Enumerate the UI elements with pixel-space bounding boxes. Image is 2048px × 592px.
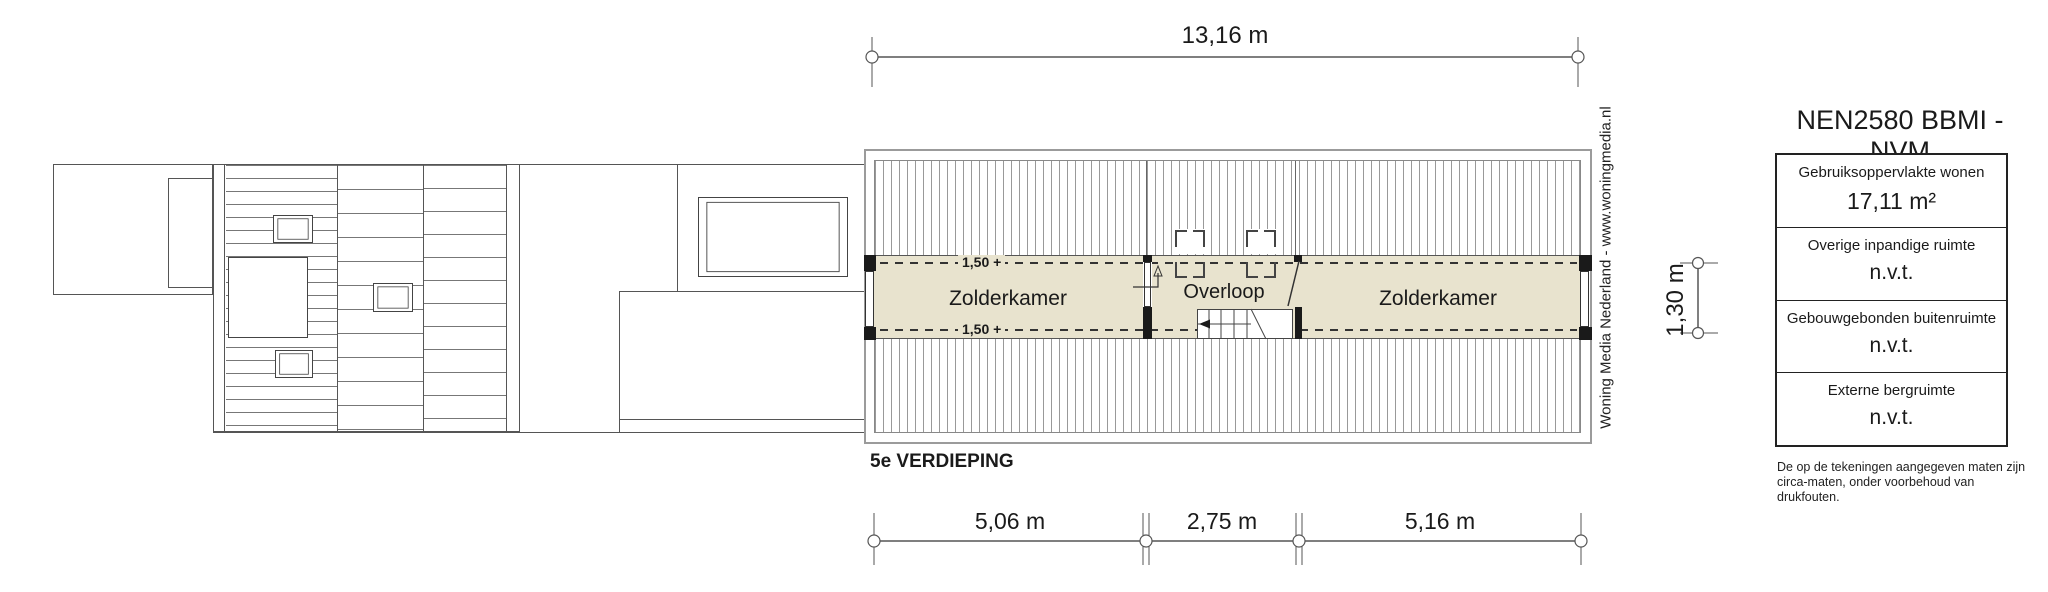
roof-ridge-line-2 xyxy=(337,165,338,431)
room-label-overloop: Overloop xyxy=(1164,281,1284,304)
roof-ridge-line-3 xyxy=(423,165,424,431)
wall-right-bottom xyxy=(1579,327,1592,340)
legend-row-label: Externe bergruimte xyxy=(1777,382,2006,399)
roof-ridge-line-1 xyxy=(224,165,225,431)
stairs xyxy=(1197,309,1293,339)
dim-right-height: 1,30 m xyxy=(1662,259,1690,341)
floorplan-canvas: 1,50 + 1,50 + Zolderkamer Overloop Zolde… xyxy=(0,0,2048,592)
door-wall-bottom xyxy=(1295,307,1302,339)
vent-2-corner-tr xyxy=(1264,230,1276,247)
wall-left-bottom xyxy=(864,327,876,340)
dim-bottom-segment-2: 2,75 m xyxy=(1142,508,1302,535)
vent-1-corner-bl xyxy=(1175,262,1187,278)
skylight-middle xyxy=(698,197,848,277)
dormer-outline xyxy=(228,257,308,338)
terrace-inner-line xyxy=(619,419,865,420)
vent-2-corner-br xyxy=(1264,262,1276,278)
wall-left-top xyxy=(864,255,876,271)
door-wall-top xyxy=(1294,255,1302,262)
legend-row-bergruimte: Externe bergruimte n.v.t. xyxy=(1777,372,2006,445)
legend-row-label: Overige inpandige ruimte xyxy=(1777,237,2006,254)
legend-footnote-line2: circa-maten, onder voorbehoud van drukfo… xyxy=(1777,475,2037,505)
legend-row-value: n.v.t. xyxy=(1777,334,2006,358)
annex-outline-small xyxy=(168,178,213,288)
terrace-divider xyxy=(677,164,678,291)
window-right xyxy=(1580,271,1589,327)
legend-row-value: 17,11 m² xyxy=(1777,188,2006,215)
hatch-divider-1 xyxy=(1146,161,1147,255)
skylight-1 xyxy=(273,215,313,243)
vent-1-corner-br xyxy=(1193,262,1205,278)
level-mark-top: 1,50 + xyxy=(958,255,1005,270)
legend-row-label: Gebouwgebonden buitenruimte xyxy=(1777,310,2006,327)
room-label-zolderkamer-right: Zolderkamer xyxy=(1368,287,1508,311)
vent-1-corner-tl xyxy=(1175,230,1187,247)
legend-row-buitenruimte: Gebouwgebonden buitenruimte n.v.t. xyxy=(1777,300,2006,373)
dim-bottom-segment-3: 5,16 m xyxy=(1360,508,1520,535)
legend-row-label: Gebruiksoppervlakte wonen xyxy=(1777,164,2006,181)
legend-footnote-line1: De op de tekeningen aangegeven maten zij… xyxy=(1777,460,2037,475)
watermark-text: Woning Media Nederland - www.woningmedia… xyxy=(1598,103,1615,433)
legend-row-inpandig: Overige inpandige ruimte n.v.t. xyxy=(1777,227,2006,300)
legend-table: Gebruiksoppervlakte wonen 17,11 m² Overi… xyxy=(1775,153,2008,447)
interior-wall-1-bottom xyxy=(1143,307,1152,339)
floor-title: 5e VERDIEPING xyxy=(870,451,1014,473)
roof-hatch-lower xyxy=(875,339,1580,432)
vent-2-corner-bl xyxy=(1246,262,1258,278)
legend-row-value: n.v.t. xyxy=(1777,406,2006,430)
wall-right-top xyxy=(1579,255,1592,271)
skylight-2 xyxy=(373,283,413,312)
roof-hatch-band-3 xyxy=(423,165,506,431)
legend-row-wonen: Gebruiksoppervlakte wonen 17,11 m² xyxy=(1777,155,2006,227)
roof-ridge-line-4 xyxy=(506,165,507,431)
level-mark-bottom: 1,50 + xyxy=(958,322,1005,337)
stair-balustrade xyxy=(1144,262,1151,307)
skylight-3 xyxy=(275,350,313,378)
legend-footnote: De op de tekeningen aangegeven maten zij… xyxy=(1777,460,2037,505)
window-left xyxy=(865,271,874,327)
room-label-zolderkamer-left: Zolderkamer xyxy=(938,287,1078,311)
hatch-divider-2 xyxy=(1295,161,1296,255)
legend-row-value: n.v.t. xyxy=(1777,261,2006,285)
vent-2-corner-tl xyxy=(1246,230,1258,247)
terrace-top-edge xyxy=(520,164,866,165)
interior-wall-1-top xyxy=(1143,255,1152,262)
left-complex-bottom-edge xyxy=(213,432,866,433)
dim-bottom-segment-1: 5,06 m xyxy=(930,508,1090,535)
terrace-lower-rect xyxy=(619,291,865,432)
dim-top-width: 13,16 m xyxy=(1145,22,1305,50)
roof-hatch-upper xyxy=(875,161,1580,255)
vent-1-corner-tr xyxy=(1193,230,1205,247)
